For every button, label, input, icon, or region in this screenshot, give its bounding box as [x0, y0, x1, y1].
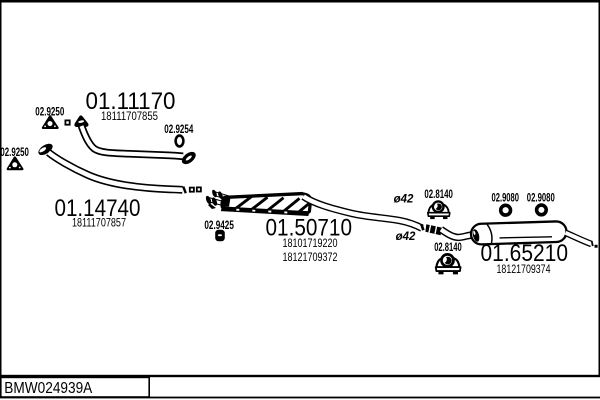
svg-text:18101719220: 18101719220 — [283, 236, 338, 250]
svg-text:ø42: ø42 — [396, 231, 416, 243]
svg-text:02.8140: 02.8140 — [424, 189, 453, 201]
svg-text:02.9080: 02.9080 — [527, 192, 555, 204]
svg-text:02.9080: 02.9080 — [492, 192, 520, 204]
svg-text:02.9254: 02.9254 — [164, 124, 193, 136]
svg-text:18121709372: 18121709372 — [283, 250, 338, 264]
svg-text:BMW024939A: BMW024939A — [4, 380, 93, 397]
svg-text:ø42: ø42 — [394, 194, 414, 206]
svg-text:18121709374: 18121709374 — [497, 262, 551, 276]
svg-text:18111707855: 18111707855 — [101, 109, 158, 123]
svg-text:18111707857: 18111707857 — [72, 216, 126, 230]
svg-text:02.8140: 02.8140 — [434, 242, 462, 254]
